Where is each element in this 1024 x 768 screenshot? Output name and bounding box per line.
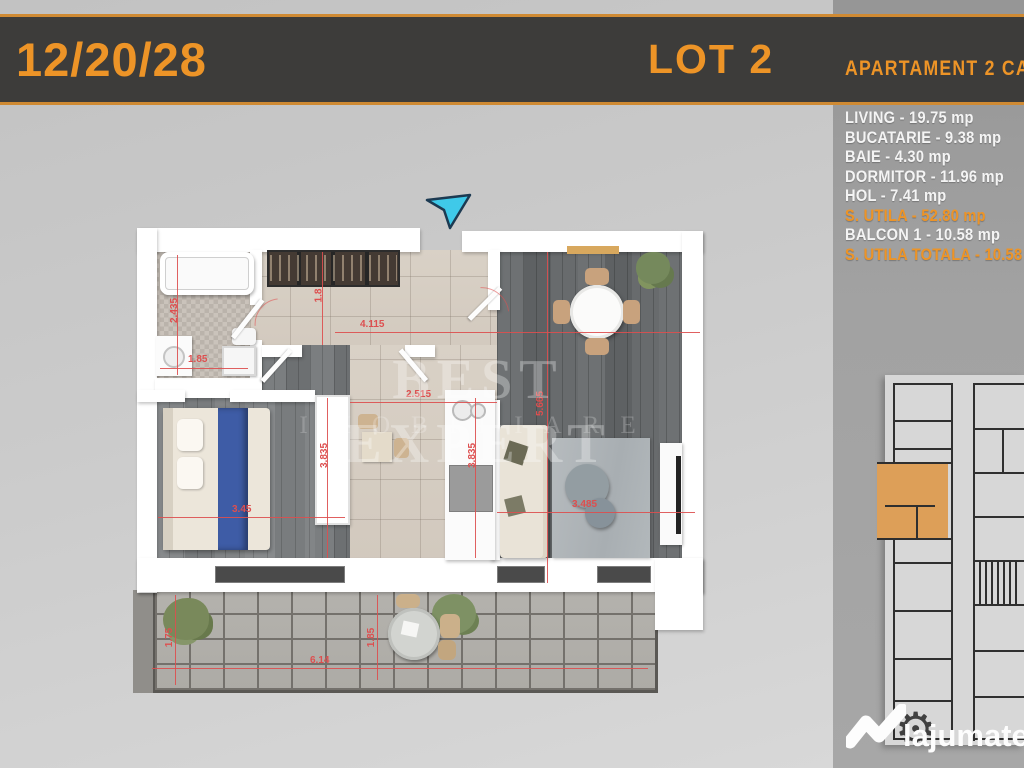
dining-table — [570, 285, 624, 339]
mini-plan-wall — [973, 383, 975, 741]
room-line-s-utila-totala: S. UTILA TOTALA - 10.58 mp — [845, 245, 1000, 265]
room-line-baie: BAIE - 4.30 mp — [845, 147, 1000, 167]
balcony-side-block — [133, 590, 153, 693]
outer-wall-top-left — [137, 228, 420, 252]
mini-plan-wall — [893, 658, 953, 660]
dim-label-baie-h: 1.85 — [188, 354, 207, 365]
header-lot-label: LOT 2 — [648, 17, 774, 102]
room-line-balcon: BALCON 1 - 10.58 mp — [845, 225, 1000, 245]
mini-plan-wall — [893, 383, 895, 462]
mini-plan-stairs — [979, 562, 1019, 604]
dim-label-baie-v: 2.435 — [169, 298, 180, 323]
balcony-chair-1 — [440, 614, 460, 638]
header-subtitle-clip: APARTAMENT 2 CAMERE — [845, 57, 1024, 87]
bathtub — [160, 252, 254, 295]
living-window-1 — [497, 566, 545, 583]
balcony-napkin — [401, 620, 420, 637]
mini-plan-wall — [877, 538, 951, 540]
dim-line-4115 — [335, 332, 700, 333]
dim-label-balcony-v2: 1.85 — [366, 628, 377, 647]
floorplan: 2.435 1.85 1.8 4.115 2.515 3.45 3.835 3.… — [0, 0, 833, 768]
mini-plan-wall — [893, 610, 953, 612]
room-line-dormitor: DORMITOR - 11.96 mp — [845, 167, 1000, 187]
header-subtitle: APARTAMENT 2 CAMERE — [845, 57, 1024, 81]
bathroom-sink-bowl — [163, 346, 185, 368]
mini-plan-wall — [1002, 428, 1004, 474]
balcony-chair-3 — [396, 594, 420, 608]
outer-wall-right — [682, 231, 703, 593]
entrance-arrow-icon — [424, 192, 474, 234]
wall-bedroom-top-a — [137, 390, 185, 402]
bed-pillow-1 — [177, 419, 203, 451]
mini-plan-wall — [893, 562, 953, 564]
mini-plan-wall — [973, 428, 1024, 430]
room-line-hol: HOL - 7.41 mp — [845, 186, 1000, 206]
mini-plan-wall — [973, 516, 1024, 518]
mini-plan-wall — [973, 383, 1024, 385]
dim-label-4115: 4.115 — [360, 319, 384, 330]
lajumate-house-icon — [846, 704, 906, 756]
dim-label-kitchen-v: 1.8 — [313, 289, 324, 303]
dim-line-bed-h — [158, 517, 345, 518]
dim-label-bed-h: 3.45 — [232, 504, 251, 515]
logo-brand-text: lajumate — [903, 718, 1024, 753]
bed-pillow-2 — [177, 457, 203, 489]
room-area-list: LIVING - 19.75 mp BUCATARIE - 9.38 mp BA… — [845, 108, 1024, 264]
mini-plan-wall — [916, 505, 918, 538]
mini-plan-wall — [973, 472, 1024, 474]
dim-line-baie-h — [160, 368, 248, 369]
dim-line-living-h — [497, 512, 695, 513]
dining-chair-e — [623, 300, 640, 324]
mini-plan-wall — [885, 505, 935, 507]
logo-wordmark: lajumate.ro — [903, 718, 1024, 754]
dim-line-balcony-h — [152, 668, 648, 669]
washing-machine — [222, 346, 256, 376]
room-line-s-utila: S. UTILA - 52.80 mp — [845, 206, 1000, 226]
living-window-2 — [597, 566, 651, 583]
mini-plan-wall — [877, 462, 951, 464]
mini-plan-wall — [973, 604, 1024, 606]
dim-label-balcony-h: 6.14 — [310, 655, 329, 666]
room-line-bucatarie: BUCATARIE - 9.38 mp — [845, 128, 1000, 148]
bedroom-window — [215, 566, 345, 583]
balcony-chair-2 — [438, 640, 456, 660]
header-bar: 12/20/28 LOT 2 APARTAMENT 2 CAMERE — [0, 14, 1024, 105]
living-top-vent — [567, 246, 619, 254]
dim-label-balcony-v1: 1.75 — [164, 628, 175, 647]
lajumate-logo: lajumate.ro — [846, 698, 1024, 764]
outer-wall-left — [137, 228, 157, 593]
mini-plan-wall — [973, 650, 1024, 652]
dining-chair-w — [553, 300, 570, 324]
mini-plan-wall — [893, 448, 953, 450]
mini-plan-wall — [893, 383, 953, 385]
dim-label-living-h: 3.485 — [572, 499, 597, 510]
kitchen-cabinet-bottles — [270, 255, 397, 281]
dining-chair-n — [585, 268, 609, 285]
header-date-code: 12/20/28 — [16, 17, 207, 102]
bed-blue-runner — [218, 408, 248, 550]
watermark-line2: IMOBILIARE — [295, 412, 661, 440]
outer-wall-corner-br — [655, 558, 703, 630]
mini-plan-highlighted-unit — [877, 462, 948, 540]
room-line-living: LIVING - 19.75 mp — [845, 108, 1000, 128]
bed-headboard — [163, 408, 173, 550]
mini-plan-wall — [893, 420, 953, 422]
